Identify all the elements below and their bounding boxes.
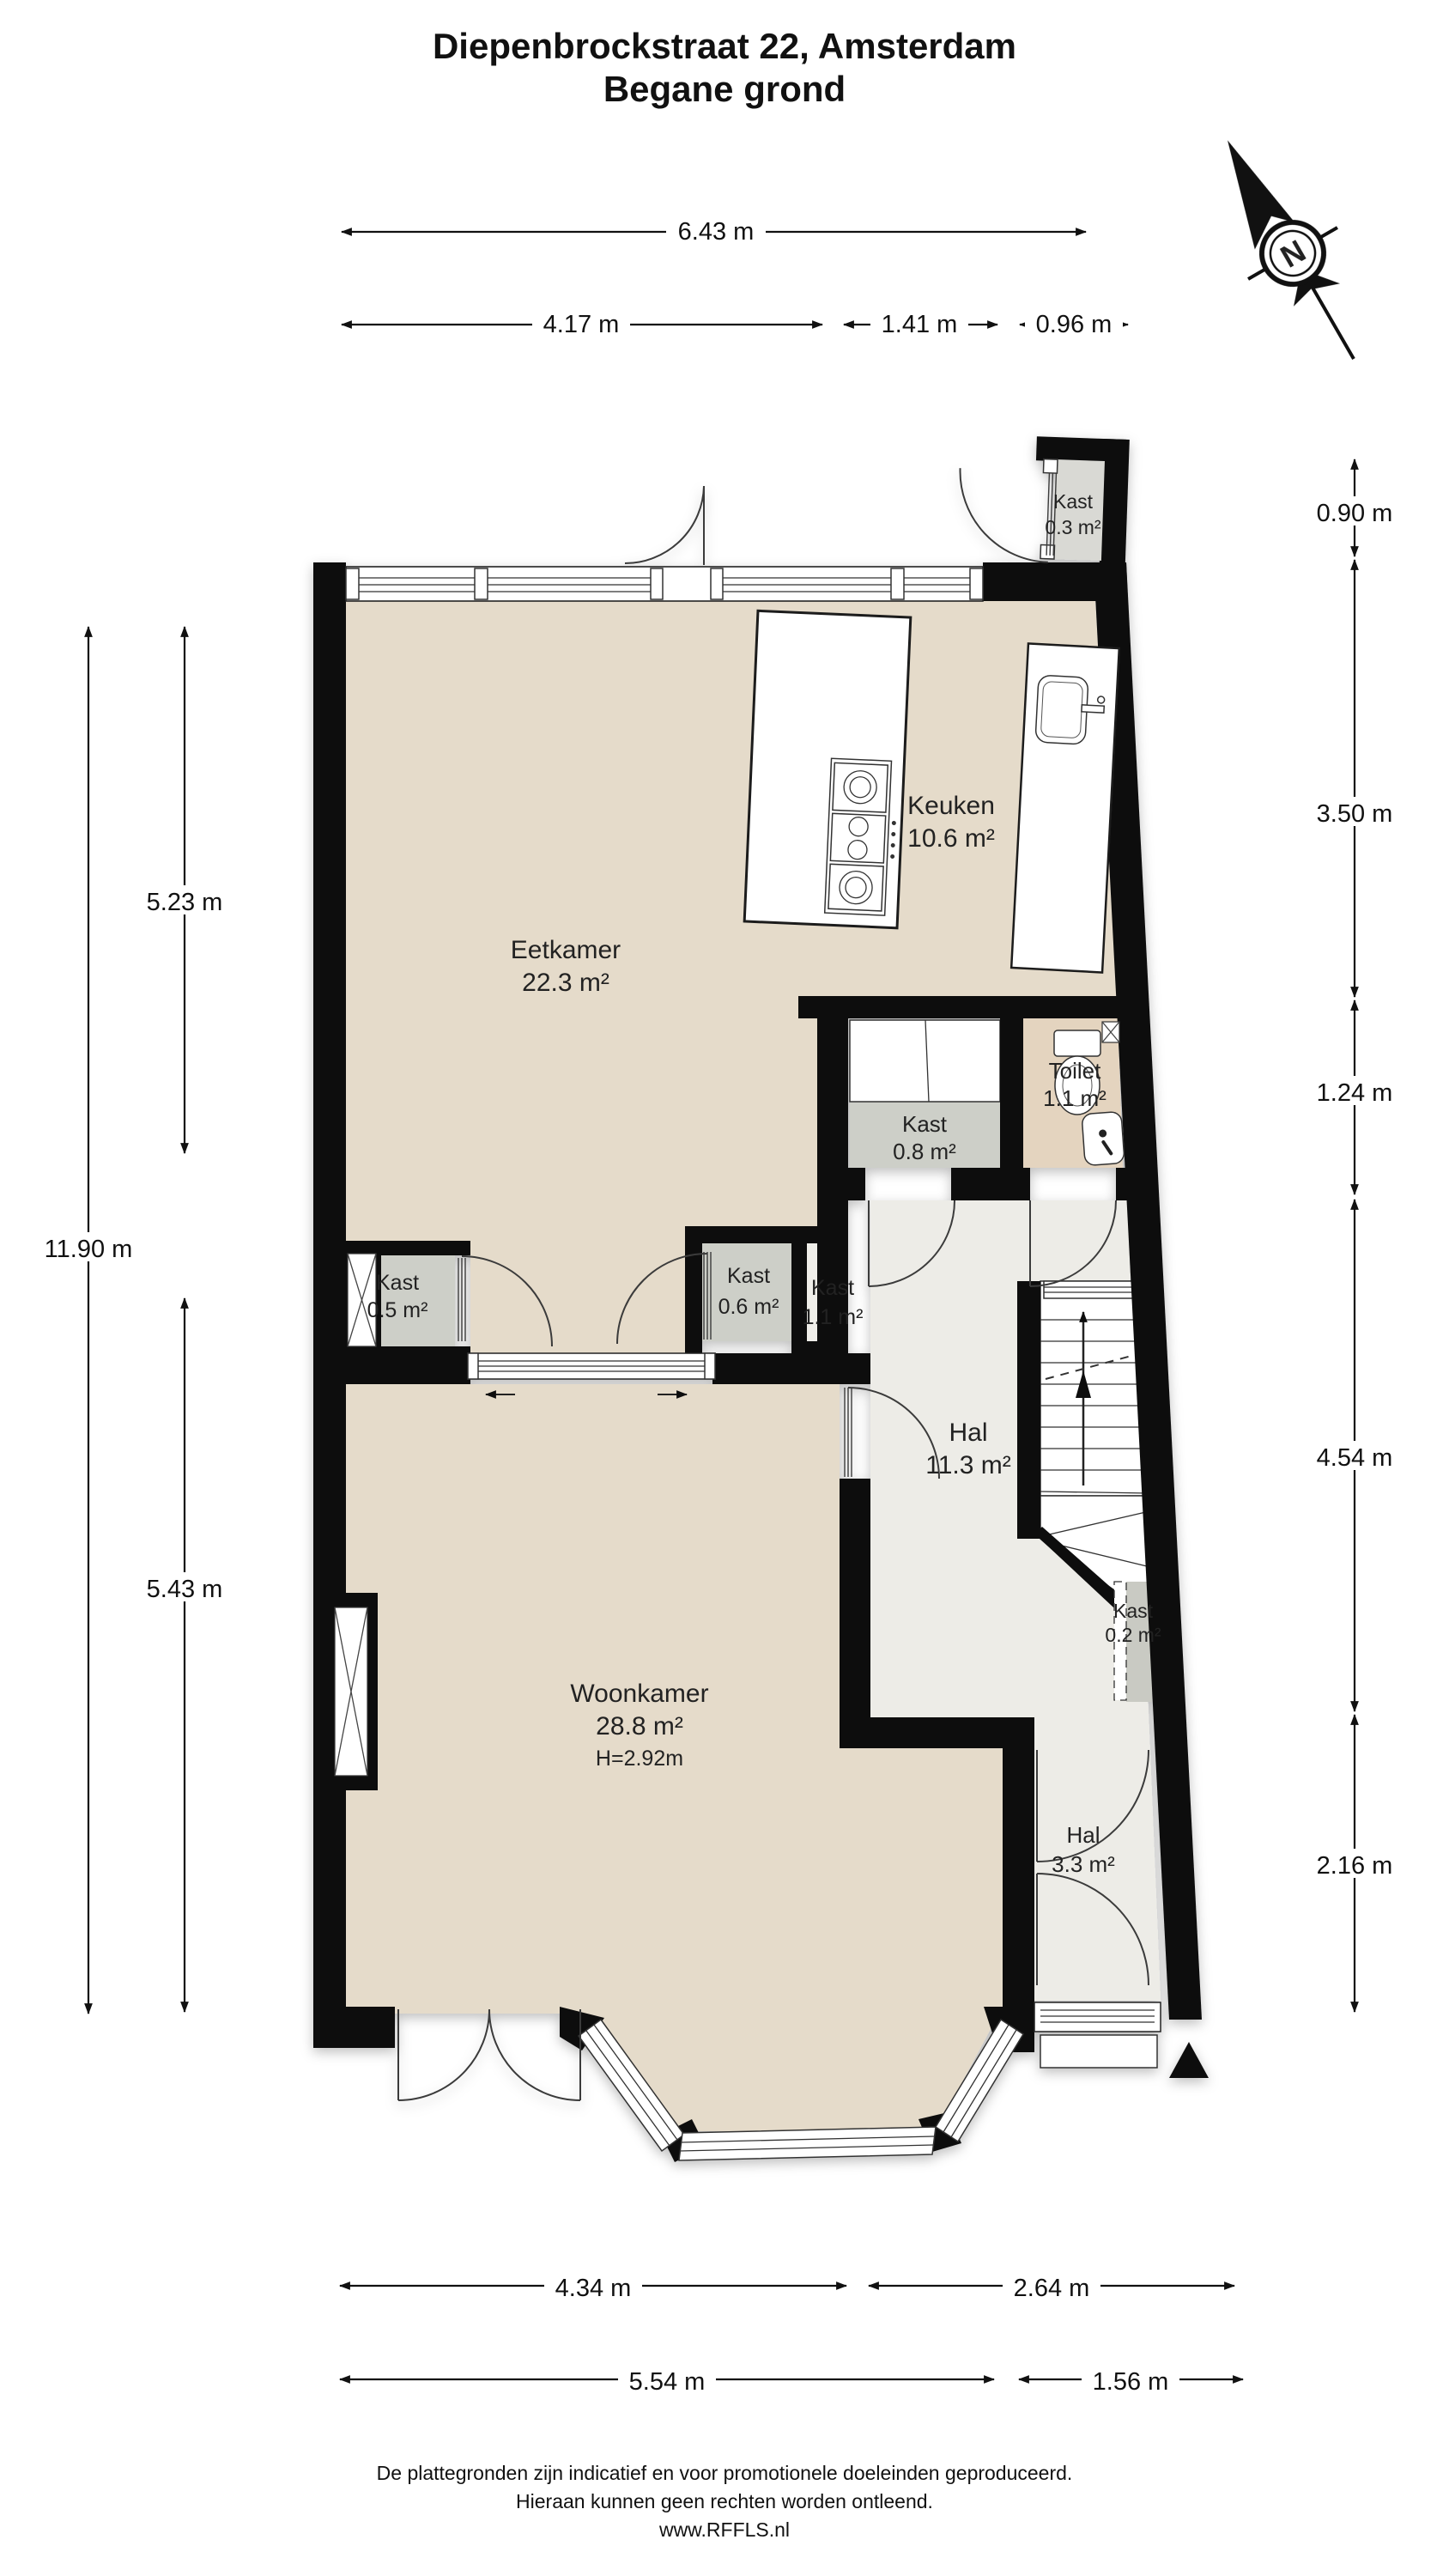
label-keuken-name: Keuken [907,792,995,820]
footer-disclaimer-line1: De plattegronden zijn indicatief en voor… [377,2462,1073,2484]
page-title: Diepenbrockstraat 22, Amsterdam [433,26,1016,66]
label-kast03-area: 0.3 m² [1045,516,1101,538]
dim-right-hal: 4.54 m [1317,1444,1393,1472]
kast08-cabinet [850,1020,1000,1102]
floor-plan-page: Diepenbrockstraat 22, Amsterdam Begane g… [0,0,1449,2576]
label-kast11-name: Kast [811,1276,854,1300]
dim-right-keuken: 3.50 m [1317,800,1393,828]
label-toilet-area: 1.1 m² [1043,1085,1106,1111]
dim-right-entree: 2.16 m [1317,1852,1393,1880]
label-hal-area: 11.3 m² [925,1451,1010,1479]
label-keuken-area: 10.6 m² [907,824,995,853]
kast05-door-leaf [458,1258,465,1341]
label-kast05-name: Kast [376,1271,419,1295]
footer-disclaimer-line2: Hieraan kunnen geen rechten worden ontle… [516,2490,933,2512]
label-kast05-area: 0.5 m² [367,1298,428,1322]
label-eetkamer-area: 22.3 m² [522,969,609,997]
dim-bottom2-left: 5.54 m [629,2368,706,2396]
label-kast08-name: Kast [902,1111,948,1137]
dim-bottom-left: 4.34 m [555,2275,632,2302]
label-kast02-name: Kast [1113,1600,1154,1622]
label-hal-entree-area: 3.3 m² [1052,1851,1115,1877]
eetkamer-hal-door-leaf [845,1388,852,1477]
entrance-stoop [1040,2035,1157,2068]
kast03-door-arc [957,468,1052,562]
label-kast06-area: 0.6 m² [718,1295,779,1319]
woonkamer-chimney-niche [324,1593,378,1790]
dim-bottom-right: 2.64 m [1014,2275,1090,2302]
entrance-threshold [1034,2002,1161,2068]
dim-left-eetkamer: 5.23 m [147,889,223,916]
top-window-band [346,486,983,601]
room-kast06-floor [702,1243,791,1341]
dim-top-right: 0.96 m [1036,311,1113,338]
toilet-vent-shaft [1102,1022,1119,1042]
french-door-left-arc [398,2009,489,2100]
label-hal-name: Hal [949,1419,987,1447]
label-kast02-area: 0.2 m² [1105,1624,1161,1646]
dim-left-total: 11.90 m [45,1236,133,1263]
dim-left-woonkamer: 5.43 m [147,1576,223,1603]
page-subtitle: Begane grond [603,69,846,109]
dim-bottom2-right: 1.56 m [1093,2368,1169,2396]
dim-right-toilet: 1.24 m [1317,1079,1393,1107]
label-toilet-name: Toilet [1049,1058,1101,1084]
label-woonkamer-height: H=2.92m [596,1747,683,1771]
label-kast08-area: 0.8 m² [893,1139,956,1164]
label-woonkamer-name: Woonkamer [570,1680,708,1708]
compass-icon: N [1183,114,1398,385]
label-kast06-name: Kast [727,1264,770,1288]
room-kast03 [957,434,1130,567]
footer: De plattegronden zijn indicatief en voor… [377,2462,1073,2541]
kitchen-counter [1011,643,1119,972]
dim-top-middle: 1.41 m [882,311,958,338]
kitchen-island [744,611,911,927]
dim-top-total: 6.43 m [678,218,755,246]
footer-website: www.RFFLS.nl [658,2518,790,2541]
label-woonkamer-area: 28.8 m² [596,1712,683,1741]
label-hal-entree-name: Hal [1066,1822,1100,1848]
label-kast11-area: 1.1 m² [803,1305,864,1329]
label-eetkamer-name: Eetkamer [511,936,621,964]
garden-door-arc [625,486,704,563]
entrance-marker [1169,2042,1209,2078]
dim-top-left: 4.17 m [543,311,620,338]
dim-right-kast03: 0.90 m [1317,500,1393,527]
label-kast03-name: Kast [1053,490,1094,513]
toilet-sink-icon [1082,1111,1125,1165]
